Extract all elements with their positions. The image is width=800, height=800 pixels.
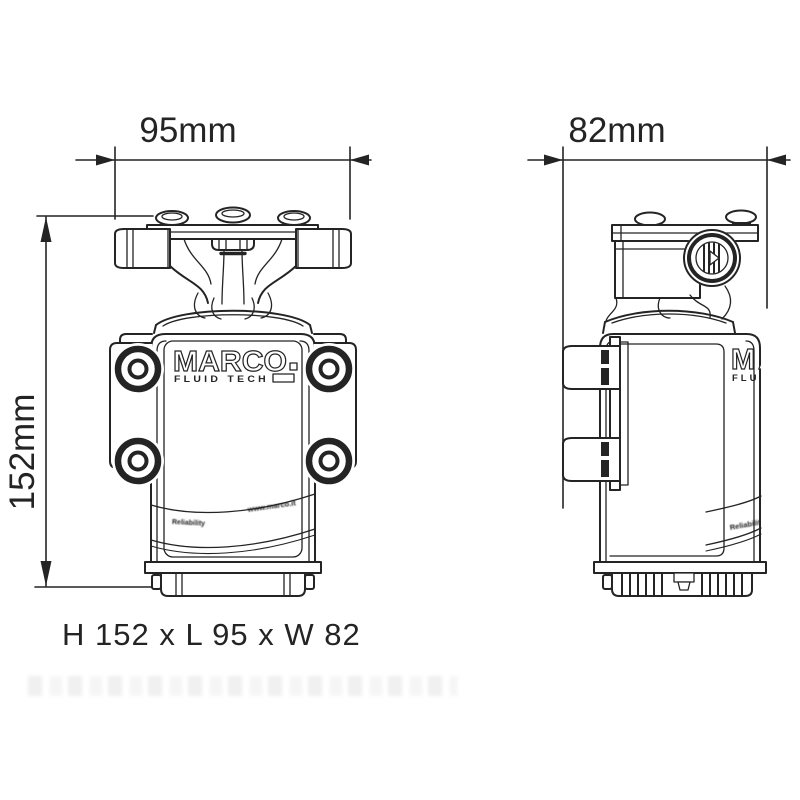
brand-tagline-text: FLUID TECH [732, 373, 800, 384]
rubber-grommet [112, 435, 164, 487]
side-mounting-bracket [563, 337, 628, 490]
rubber-foot [563, 438, 620, 481]
dimension-arrow-icon [41, 561, 52, 586]
screw-icon [278, 211, 310, 225]
base-plate [594, 562, 766, 573]
dimension-arrow-icon [96, 155, 115, 166]
front-base [145, 562, 321, 596]
front-view: 95mm 152mm [3, 111, 371, 596]
technical-drawing-page: 95mm 152mm [0, 0, 800, 800]
base-ear [152, 575, 161, 589]
hose-port-left [115, 229, 170, 268]
front-height-dimension-label: 152mm [3, 394, 42, 511]
dimension-arrow-icon [41, 217, 52, 242]
brand-tagline-text: FLUID TECH [174, 374, 269, 385]
side-width-dimension-label: 82mm [568, 111, 665, 150]
side-base [594, 562, 766, 596]
dimension-arrow-icon [350, 155, 369, 166]
side-motor-body: MARCO FLUID TECH Reliability [600, 334, 800, 567]
head-flange [154, 311, 312, 333]
rubber-grommet [303, 435, 355, 487]
hose-port-end [683, 229, 741, 287]
brand-logo-text: MARCO [731, 344, 800, 376]
front-pump-head [115, 208, 351, 334]
rubber-grommet [303, 343, 355, 395]
front-length-dimension-label: 95mm [139, 111, 236, 150]
side-pump-head [603, 211, 758, 334]
base-ear [603, 575, 612, 589]
faint-artifact-strip [28, 676, 458, 696]
rubber-foot [563, 346, 620, 389]
dimensions-summary: H 152 x L 95 x W 82 [62, 617, 361, 652]
head-flange [603, 311, 735, 333]
front-length-dimension: 95mm [76, 111, 371, 219]
dimension-arrow-icon [544, 155, 563, 166]
rubber-grommet [112, 343, 164, 395]
head-center-boss [212, 239, 254, 254]
dimension-arrow-icon [767, 155, 786, 166]
base-ear [305, 575, 314, 589]
screw-icon [216, 208, 250, 223]
base-plate [145, 562, 321, 573]
hose-port-right [296, 229, 351, 268]
side-view: 82mm [528, 111, 800, 596]
brand-logo-fragment: MARCO FLUID TECH [731, 344, 800, 384]
screw-icon [156, 211, 188, 225]
